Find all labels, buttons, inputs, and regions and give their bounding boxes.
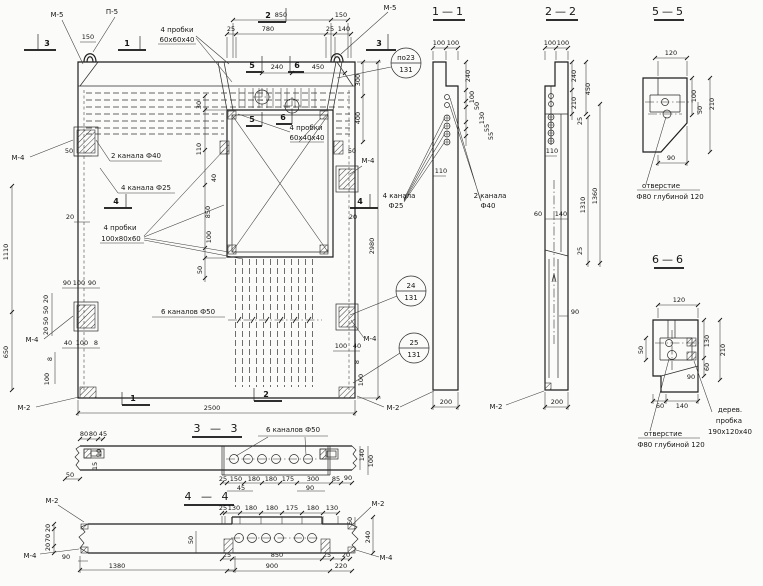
s44-dim-900: 900 xyxy=(266,562,278,570)
section-2-2-profile xyxy=(545,62,568,390)
s44-dim-1380: 1380 xyxy=(109,562,126,570)
s33-dim-80a: 80 xyxy=(80,430,88,438)
s66-ann-plug-1: дерев. xyxy=(718,406,742,414)
ann-plugs-niche-1: 4 пробки xyxy=(289,124,322,132)
s66-dim-210: 210 xyxy=(719,344,727,356)
section-6-6-title: 6—6 xyxy=(652,253,686,266)
s33-dim-180a: 180 xyxy=(248,475,260,483)
s66-dim-130: 130 xyxy=(703,335,711,347)
s55-dim-90: 90 xyxy=(667,154,675,162)
s44-dim-25b: 25 xyxy=(323,551,331,559)
ann-channels-6: 6 каналов Ф50 xyxy=(161,308,215,316)
section-2-2: 2—2 100 100 240 210 450 25 110 60 140 90… xyxy=(489,5,602,411)
s22-dim-25a: 25 xyxy=(576,117,584,125)
s33-ann-channels: 6 каналов Ф50 xyxy=(266,426,320,434)
s22-dim-110: 110 xyxy=(546,147,558,155)
dim-niche-40: 40 xyxy=(210,174,218,182)
s44-dim-130a: 130 xyxy=(228,504,240,512)
s22-dim-200: 200 xyxy=(551,398,563,406)
dim-650: 650 xyxy=(2,346,10,358)
section-6-6: 6—6 120 50 130 210 60 90 60 140 отверсти… xyxy=(637,253,752,449)
s22-dim-240: 240 xyxy=(570,70,578,82)
blueprint-sheet: 1 1 2 2 3 3 4 4 5 5 6 6 850 150 25 780 2… xyxy=(0,0,763,586)
s33-dim-50: 50 xyxy=(66,471,74,479)
s33-dim-90b: 90 xyxy=(306,484,314,492)
dim-niche-100: 100 xyxy=(205,231,213,243)
s55-dim-50: 50 xyxy=(696,106,704,114)
cut-1-top: 1 xyxy=(124,39,130,48)
embedded-plates xyxy=(74,127,358,398)
section-4-4-channels xyxy=(231,534,320,543)
dim-2980: 2980 xyxy=(368,238,376,255)
callout-po23-sheet: 131 xyxy=(399,66,412,74)
s11-dim-55a: 55 xyxy=(483,124,491,132)
s33-dim-15: 15 xyxy=(91,462,99,470)
section-5-5-profile xyxy=(643,78,687,152)
cut-5-top: 5 xyxy=(249,61,255,70)
s44-dim-20b: 20 xyxy=(44,543,52,551)
cut-3-left: 3 xyxy=(44,39,50,48)
dim-90a: 90 xyxy=(63,279,71,287)
dim-niche-110: 110 xyxy=(195,143,203,155)
ann-plugs-niche-2: 60х40х40 xyxy=(289,134,324,142)
s55-ann-hole-1: отверстие xyxy=(642,182,680,190)
s33-dim-175: 175 xyxy=(282,475,294,483)
section-5-5: 5—5 120 100 50 210 90 отверстие Ф80 глуб… xyxy=(636,5,716,201)
cut-2-top: 2 xyxy=(265,11,271,20)
s44-dim-175: 175 xyxy=(286,504,298,512)
dim-25l: 25 xyxy=(227,25,235,33)
s33-dim-180b: 180 xyxy=(265,475,277,483)
s44-mark-m4-left: М-4 xyxy=(23,552,37,560)
dim-50a: 50 xyxy=(42,306,50,314)
s66-dim-140: 140 xyxy=(676,402,688,410)
dim-8l: 8 xyxy=(94,339,98,347)
s44-dim-20a: 20 xyxy=(44,524,52,532)
s55-ann-hole-2: Ф80 глубиной 120 xyxy=(636,193,703,201)
s44-dim-180a: 180 xyxy=(245,504,257,512)
main-elevation-view: 1 1 2 2 3 3 4 4 5 5 6 6 850 150 25 780 2… xyxy=(2,4,434,416)
s11-dim-110: 110 xyxy=(435,167,447,175)
mark-m4-left-upper: М-4 xyxy=(11,154,25,162)
s33-dim-85: 85 xyxy=(332,475,340,483)
cut-3-right: 3 xyxy=(376,39,382,48)
s22-dim-140: 140 xyxy=(555,210,567,218)
niche-opening xyxy=(218,62,343,257)
s44-dim-240: 240 xyxy=(364,531,372,543)
s44-dim-50: 50 xyxy=(187,536,195,544)
s11-dim-100b: 100 xyxy=(447,39,459,47)
s44-dim-90: 90 xyxy=(62,553,70,561)
dim-niche-30: 30 xyxy=(195,101,203,109)
s33-dim-90r: 90 xyxy=(344,474,352,482)
s11-dim-50: 50 xyxy=(473,102,481,110)
ann-channels-4: 4 канала Ф25 xyxy=(121,184,171,192)
section-2-2-title: 2—2 xyxy=(545,5,579,18)
s11-ann-ch4-1: 4 канала xyxy=(383,192,416,200)
s66-dim-90: 90 xyxy=(687,373,695,381)
s11-ann-ch4-2: Ф25 xyxy=(389,202,404,210)
section-4-4-profile xyxy=(88,517,350,553)
callout-po23: по23 xyxy=(397,54,415,62)
dim-40rr: 40 xyxy=(353,342,361,350)
lifting-loop-right xyxy=(331,54,343,62)
mark-m2-bottom-right: М-2 xyxy=(386,404,399,412)
dim-300: 300 xyxy=(354,74,362,86)
section-3-3-profile xyxy=(80,446,352,470)
mark-m4-left-lower: М-4 xyxy=(25,336,39,344)
dim-2500: 2500 xyxy=(204,404,221,412)
s44-mark-m2-left: М-2 xyxy=(45,497,58,505)
vertical-channels xyxy=(228,259,322,387)
dim-50l: 50 xyxy=(65,147,73,155)
dim-20r: 20 xyxy=(349,213,357,221)
s11-dim-200: 200 xyxy=(440,398,452,406)
s33-dim-300: 300 xyxy=(307,475,319,483)
dim-1110: 1110 xyxy=(2,244,10,261)
s66-ann-hole-2: Ф80 глубиной 120 xyxy=(637,441,704,449)
s44-dim-130b: 130 xyxy=(326,504,338,512)
dim-100a: 100 xyxy=(73,279,85,287)
dim-20a: 20 xyxy=(42,295,50,303)
section-1-1-channel-holes xyxy=(444,115,450,145)
mark-m5-right: М-5 xyxy=(383,4,396,12)
s11-ann-ch2-1: 2 канала xyxy=(474,192,507,200)
dim-450: 450 xyxy=(312,63,324,71)
s55-dim-210: 210 xyxy=(708,98,716,110)
s11-ann-ch2-2: Ф40 xyxy=(481,202,496,210)
s22-dim-1360: 1360 xyxy=(591,188,599,205)
cut-6-bottom: 6 xyxy=(280,113,286,122)
s11-dim-55b: 55 xyxy=(487,132,495,140)
s22-dim-25b: 25 xyxy=(576,247,584,255)
hole-f80-left xyxy=(253,88,271,106)
mark-m5-left: М-5 xyxy=(50,11,63,19)
dim-niche-850: 850 xyxy=(204,206,212,218)
s44-dim-25t: 25 xyxy=(219,504,227,512)
section-4-4-title: 4 — 4 xyxy=(185,490,232,503)
s44-dim-180c: 180 xyxy=(307,504,319,512)
section-3-3-title: 3 — 3 xyxy=(194,422,241,435)
s33-dim-80b: 80 xyxy=(89,430,97,438)
s66-ann-hole-1: отверстие xyxy=(644,430,682,438)
dim-90b: 90 xyxy=(88,279,96,287)
s11-dim-100a: 100 xyxy=(433,39,445,47)
mark-m4-right-upper: М-4 xyxy=(361,157,375,165)
dim-150l: 150 xyxy=(82,33,94,41)
cut-6-top: 6 xyxy=(294,61,300,70)
s66-dim-60r: 60 xyxy=(703,363,711,371)
dim-8r: 8 xyxy=(353,360,361,364)
mark-m4-right-lower: М-4 xyxy=(363,335,377,343)
s66-ann-plug-3: 190х120х40 xyxy=(708,428,752,436)
s44-mark-m4-right: М-4 xyxy=(379,554,393,562)
dim-400: 400 xyxy=(354,112,362,124)
section-4-4: 4 — 4 25 130 180 180 175 180 130 20 70 2… xyxy=(23,490,393,573)
s66-dim-120: 120 xyxy=(673,296,685,304)
s33-dim-45: 45 xyxy=(99,430,107,438)
s33-dim-100: 100 xyxy=(367,455,375,467)
s55-dim-100: 100 xyxy=(690,90,698,102)
s11-dim-240: 240 xyxy=(464,70,472,82)
mark-p5: П-5 xyxy=(106,8,118,16)
dim-50b: 50 xyxy=(42,317,50,325)
dim-20l: 20 xyxy=(66,213,74,221)
dim-100c: 100 xyxy=(76,339,88,347)
s22-dim-210: 210 xyxy=(570,97,578,109)
lifting-loop-left xyxy=(84,54,96,62)
s22-dim-450: 450 xyxy=(584,83,592,95)
callout-24-sheet: 131 xyxy=(404,294,417,302)
dim-niche-50: 50 xyxy=(196,266,204,274)
s44-dim-20c: 20 xyxy=(342,551,350,559)
cut-4-left: 4 xyxy=(113,197,119,206)
ann-plugs-top-1: 4 пробки xyxy=(160,26,193,34)
s44-dim-220: 220 xyxy=(335,562,347,570)
callout-25: 25 xyxy=(410,339,419,347)
section-5-5-title: 5—5 xyxy=(652,5,686,18)
s44-dim-850: 850 xyxy=(271,551,283,559)
s22-mark-m2: М-2 xyxy=(489,403,502,411)
main-dimensions: 850 150 25 780 25 140 150 240 450 300 40… xyxy=(2,11,381,416)
dim-100rr: 100 xyxy=(335,342,347,350)
dim-20b: 20 xyxy=(42,327,50,335)
dim-8b: 8 xyxy=(46,357,54,361)
dim-150r: 150 xyxy=(335,11,347,19)
ann-channels-2: 2 канала Ф40 xyxy=(111,152,161,160)
section-1-1-title: 1—1 xyxy=(432,5,466,18)
mark-m2-bottom-left: М-2 xyxy=(17,404,30,412)
ann-plugs-side-2: 100х80х60 xyxy=(101,235,140,243)
ann-plugs-side-1: 4 пробки xyxy=(103,224,136,232)
s55-dim-120: 120 xyxy=(665,49,677,57)
s66-dim-50: 50 xyxy=(637,346,645,354)
s44-dim-180b: 180 xyxy=(266,504,278,512)
dim-140: 140 xyxy=(338,25,350,33)
s33-dim-150: 150 xyxy=(230,475,242,483)
s33-dim-25: 25 xyxy=(219,475,227,483)
cut-1-bottom: 1 xyxy=(130,394,136,403)
s33-dim-140: 140 xyxy=(358,449,366,461)
cut-2-bottom: 2 xyxy=(263,390,269,399)
section-3-3: 3 — 3 80 80 45 50 90 15 25 150 180 180 1… xyxy=(63,422,375,492)
dim-100d: 100 xyxy=(43,373,51,385)
s22-dim-100a: 100 xyxy=(544,39,556,47)
dim-50r: 50 xyxy=(348,147,356,155)
s33-dim-90l: 90 xyxy=(95,449,103,457)
s33-dim-45b: 45 xyxy=(237,484,245,492)
s22-dim-100b: 100 xyxy=(557,39,569,47)
cut-4-right: 4 xyxy=(357,197,363,206)
dim-25r: 25 xyxy=(326,25,334,33)
dim-40l: 40 xyxy=(64,339,72,347)
dim-850: 850 xyxy=(275,11,287,19)
s22-dim-60: 60 xyxy=(534,210,542,218)
s66-ann-plug-2: пробка xyxy=(716,417,742,425)
section-3-3-channels xyxy=(226,455,318,464)
dim-780: 780 xyxy=(262,25,274,33)
section-1-1-profile xyxy=(433,62,458,390)
ann-plugs-top-2: 60х60х40 xyxy=(159,36,194,44)
callout-25-sheet: 131 xyxy=(407,351,420,359)
s22-dim-1310: 1310 xyxy=(579,197,587,214)
s11-dim-100c: 100 xyxy=(468,91,476,103)
s44-mark-m2-right: М-2 xyxy=(371,500,384,508)
s44-dim-70: 70 xyxy=(44,534,52,542)
s22-dim-90: 90 xyxy=(571,308,579,316)
s44-dim-25a: 25 xyxy=(223,551,231,559)
callout-24: 24 xyxy=(407,282,416,290)
s11-dim-130: 130 xyxy=(478,112,486,124)
panel-drawing: 1 1 2 2 3 3 4 4 5 5 6 6 850 150 25 780 2… xyxy=(0,0,763,586)
dim-240: 240 xyxy=(271,63,283,71)
